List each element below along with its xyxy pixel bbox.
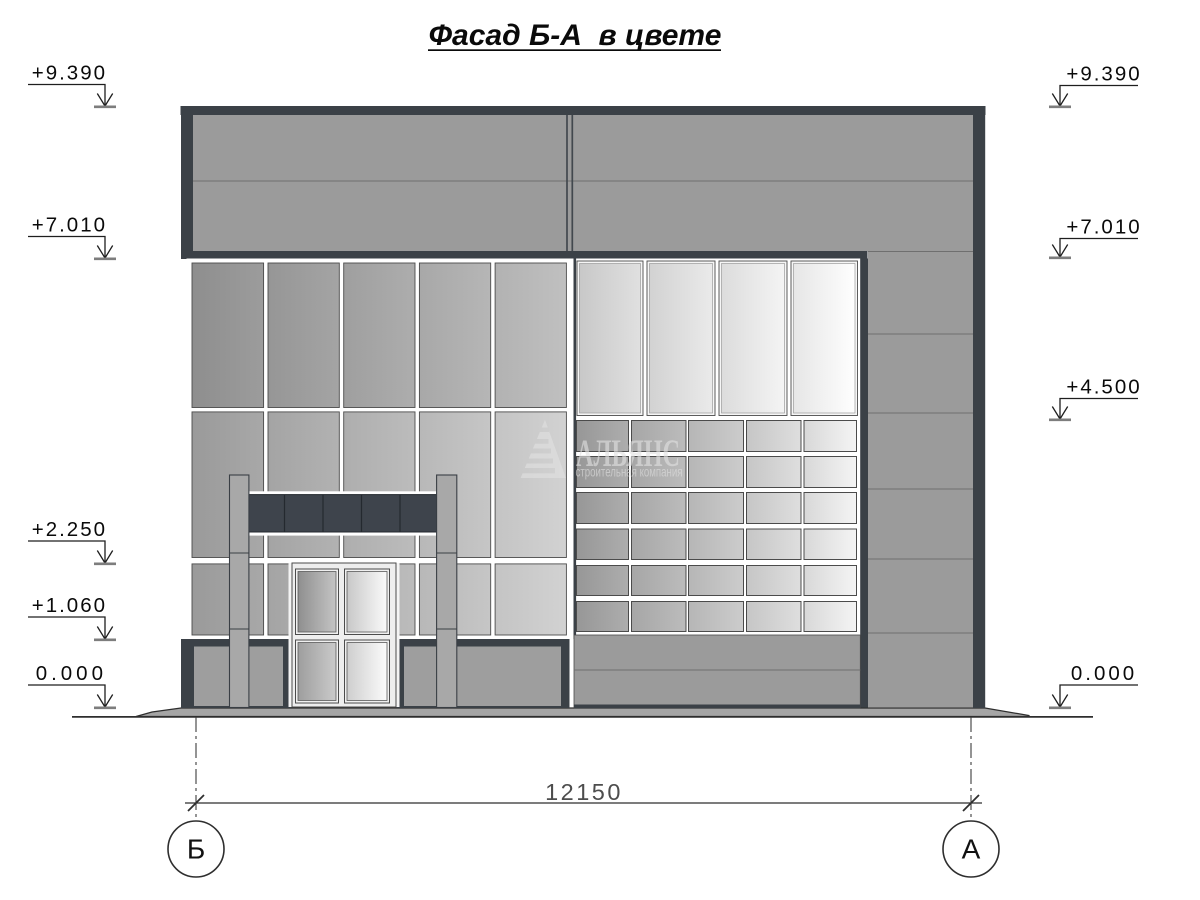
svg-text:+4.500: +4.500 xyxy=(1066,376,1141,399)
svg-text:Фасад Б-А в цвете: Фасад Б-А в цвете xyxy=(429,19,722,52)
svg-text:0.000: 0.000 xyxy=(36,662,107,685)
svg-text:А: А xyxy=(962,834,981,865)
svg-text:12150: 12150 xyxy=(545,779,623,805)
svg-text:строительная компания: строительная компания xyxy=(576,464,683,480)
svg-text:+9.390: +9.390 xyxy=(32,62,107,85)
svg-text:+7.010: +7.010 xyxy=(32,214,107,237)
svg-text:+7.010: +7.010 xyxy=(1066,216,1141,239)
svg-text:Б: Б xyxy=(187,834,205,865)
svg-text:+2.250: +2.250 xyxy=(32,518,107,541)
svg-text:+9.390: +9.390 xyxy=(1066,63,1141,86)
svg-text:+1.060: +1.060 xyxy=(32,594,107,617)
svg-text:0.000: 0.000 xyxy=(1071,662,1137,685)
